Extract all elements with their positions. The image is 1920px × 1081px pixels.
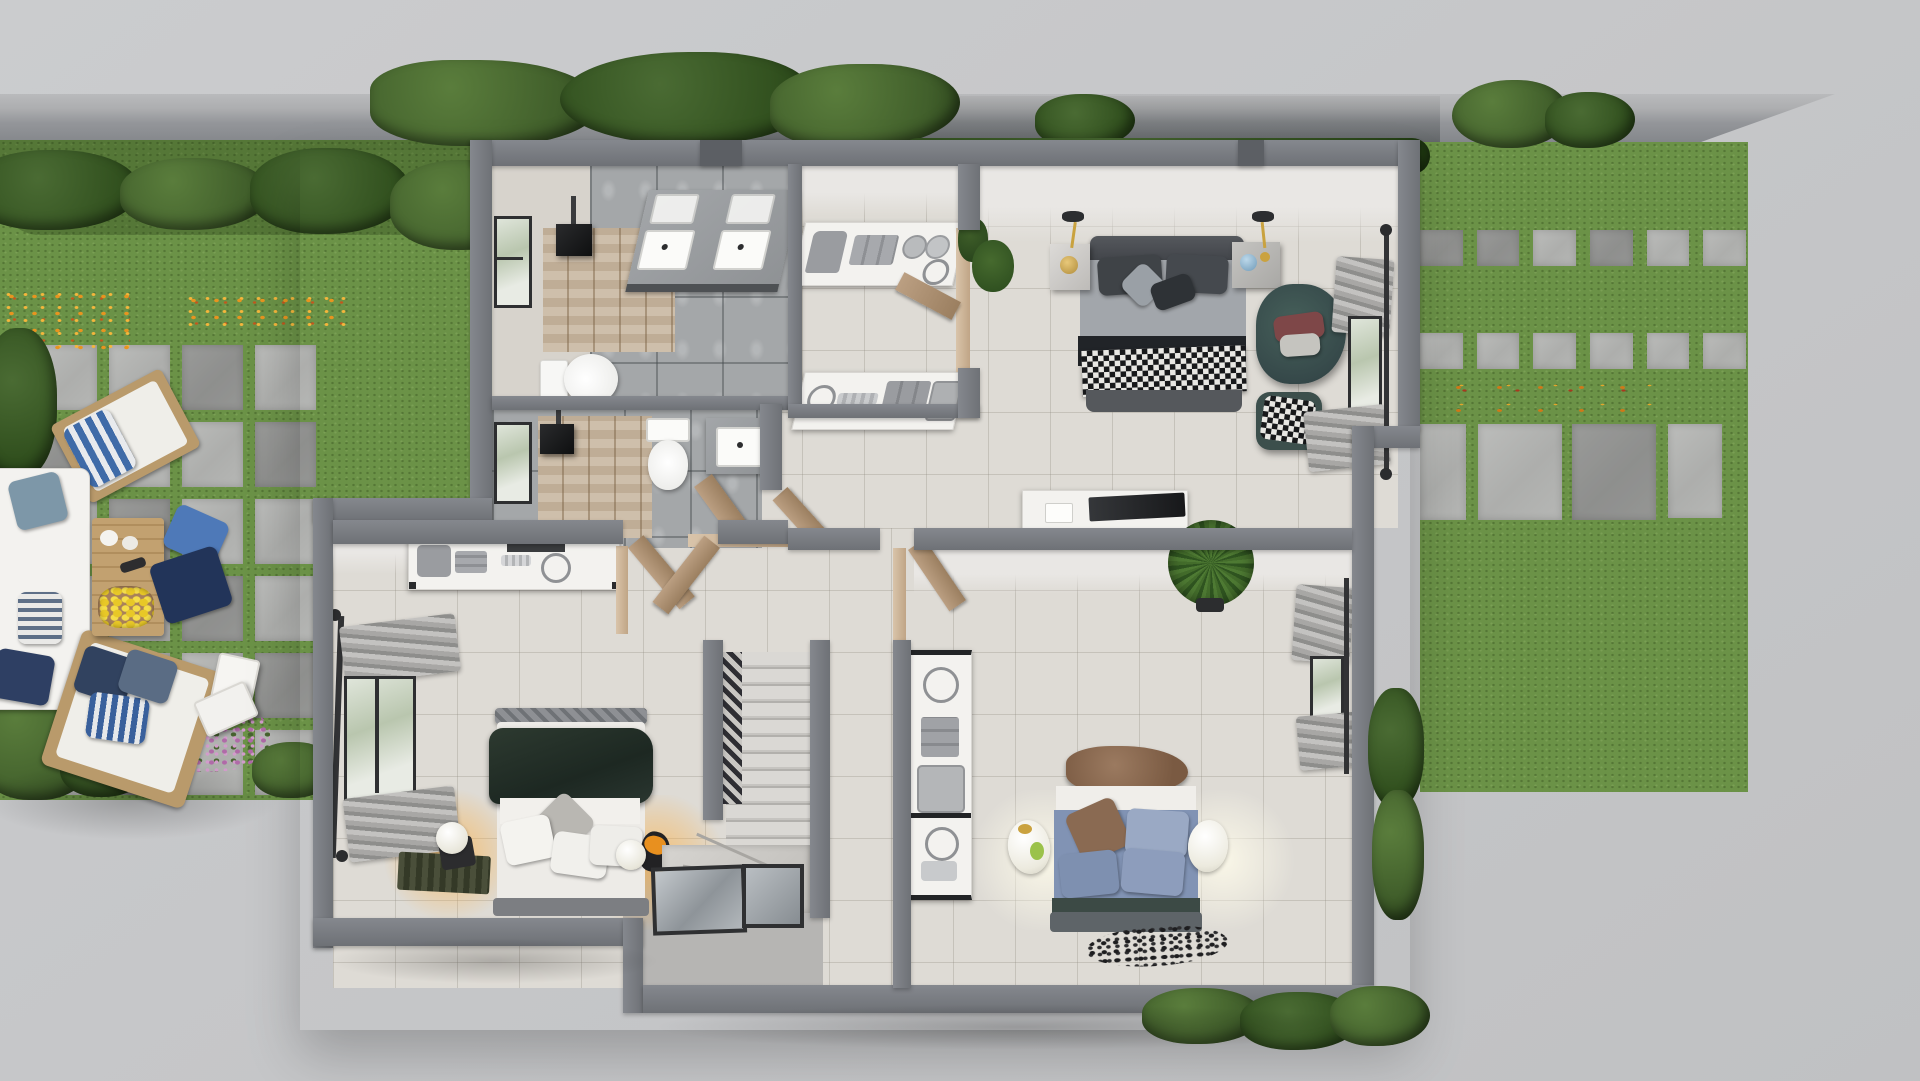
paver: [1420, 333, 1463, 369]
basket: [917, 765, 965, 813]
large-slab: [1420, 424, 1466, 520]
sofa-pillow-navy: [0, 647, 56, 706]
stair-wall-right: [810, 640, 830, 918]
exterior-wall-step-top: [313, 498, 492, 522]
sunglasses: [119, 556, 147, 574]
pendant-lamp: [1062, 211, 1084, 222]
bedroom-left-top-wall: [333, 520, 623, 544]
folded-sweater: [417, 545, 451, 577]
glass-ball-lamp: [1240, 254, 1257, 271]
fallen-leaves: [1438, 376, 1653, 416]
mug: [100, 530, 118, 546]
hall-top-wall: [718, 520, 788, 544]
stair-wall-left: [703, 640, 723, 820]
mirror-sink: [649, 194, 700, 224]
paver: [1533, 230, 1576, 266]
coiled-cable: [923, 667, 959, 703]
large-slab: [1572, 424, 1656, 520]
wall-sink: [646, 418, 690, 442]
bedroom-right-top-wall-a: [788, 528, 880, 550]
double-vanity: [627, 190, 801, 284]
stepping-row-bottom: [1420, 333, 1746, 369]
house-bottom-shadow: [650, 1004, 1390, 1050]
master-bedroom-wall-face: [980, 164, 1398, 242]
paver: [1590, 333, 1633, 369]
bath2-window: [494, 422, 532, 504]
cloth: [921, 861, 957, 881]
bedroom-left-door-frame: [616, 546, 628, 634]
stepping-row-top: [1420, 230, 1746, 266]
toilet-bowl: [648, 440, 688, 490]
nightstand-left: [1050, 244, 1090, 290]
folded-clothes: [848, 235, 899, 265]
exterior-wall-left-upper: [470, 140, 492, 520]
armchair-pillow-gray: [1279, 333, 1320, 358]
glow-lamp-left: [436, 822, 468, 854]
exterior-wall-top: [470, 140, 1420, 166]
bedroom-left-window: [344, 676, 416, 802]
rod-finial: [1380, 224, 1392, 236]
window-mullion: [497, 257, 523, 260]
coiled-belt: [920, 259, 952, 285]
mirror-sink: [725, 194, 776, 224]
pendant-lamp: [1252, 211, 1274, 222]
dresser: [408, 536, 620, 590]
green-duvet: [489, 728, 653, 804]
gold-tray: [1060, 256, 1078, 274]
lime-accent: [1030, 842, 1044, 860]
closet-island-upper: [791, 222, 968, 286]
paver: [1647, 230, 1690, 266]
sink: [636, 230, 695, 270]
exterior-wall-left-lower: [313, 498, 333, 948]
large-slab: [1478, 424, 1562, 520]
sofa-pillow-striped: [18, 592, 62, 644]
floorplan-render: [0, 0, 1920, 1081]
entry-glass-panel: [742, 864, 804, 928]
rod-finial: [1380, 468, 1392, 480]
bedroom-right-top-wall-b: [914, 528, 1352, 550]
folded-towels: [921, 717, 959, 757]
bath-divider-wall: [492, 396, 788, 410]
bath-closet-wall: [788, 164, 802, 410]
coiled-belt: [541, 553, 571, 583]
paver: [1703, 333, 1746, 369]
entry-glass-panel: [651, 864, 747, 935]
paver: [1703, 230, 1746, 266]
paver: [1420, 230, 1463, 266]
curtain-rod: [1344, 578, 1349, 774]
glow-lamp-right: [616, 840, 646, 870]
gold-accent: [1018, 824, 1032, 834]
stair-runner: [722, 652, 742, 804]
shower-head: [556, 224, 592, 256]
remote: [1045, 503, 1073, 523]
garment-bag: [805, 231, 849, 273]
nightstand-right: [1232, 242, 1280, 288]
closet-plant: [972, 240, 1014, 292]
lounge-pillow-striped: [85, 691, 151, 745]
tv-console: [1022, 490, 1188, 532]
closet-bottom-wall: [788, 404, 980, 418]
paver: [182, 345, 243, 410]
coiled-cable: [925, 827, 959, 861]
lemon-tray: [98, 586, 154, 628]
blue-pillow: [1120, 847, 1186, 896]
exterior-wall-right-upper: [1398, 140, 1420, 430]
shower-head: [540, 424, 574, 454]
jewelry-sketch: [501, 555, 531, 566]
side-bush: [1372, 790, 1424, 920]
closet-master-wall: [958, 164, 980, 230]
mug: [122, 536, 138, 550]
blue-pillow: [1058, 849, 1120, 899]
bed-left-headboard: [493, 898, 649, 916]
closet-wall-face: [800, 164, 958, 216]
bedroom-right-door-frame: [893, 548, 906, 642]
house-bottom-shadow: [330, 938, 660, 984]
tv-flat: [1088, 493, 1185, 522]
paver: [1477, 333, 1520, 369]
folded-stack: [455, 551, 487, 573]
rod-finial: [336, 850, 348, 862]
closet-island-lower: [791, 372, 966, 430]
paver: [1533, 333, 1576, 369]
master-foot-bench: [1086, 390, 1242, 412]
bedroom-right-left-wall: [893, 640, 911, 988]
bath-window: [494, 216, 532, 308]
shelf-divider: [909, 813, 971, 818]
wall-pier: [1238, 140, 1264, 166]
bath2-right-wall: [760, 404, 782, 490]
basket: [923, 235, 953, 259]
wall-pier: [700, 140, 742, 166]
corner-bracket: [409, 582, 416, 589]
sink: [712, 230, 771, 270]
paver: [1590, 230, 1633, 266]
bedroom-right-wall-face: [914, 550, 1352, 594]
closet-master-wall-lower: [958, 368, 980, 418]
large-slab: [1668, 424, 1722, 518]
window-mullion: [375, 679, 379, 793]
palm-pot: [1196, 598, 1224, 612]
paver: [1647, 333, 1690, 369]
shelf-unit: [908, 650, 972, 900]
gold-decor: [1260, 252, 1270, 262]
drain: [737, 442, 743, 448]
paver: [1477, 230, 1520, 266]
